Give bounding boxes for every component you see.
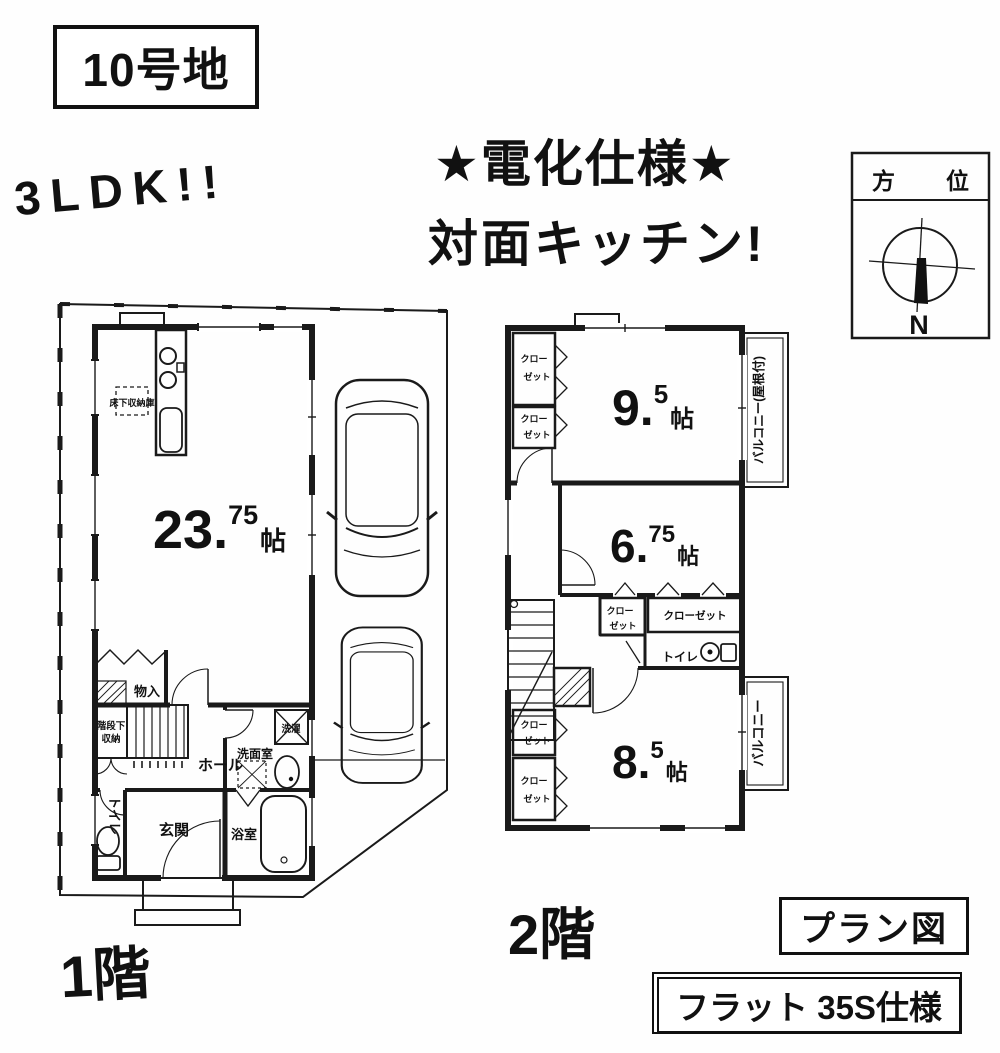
closet: クロー ゼット bbox=[513, 758, 567, 820]
room85-size-label: 8.5帖 bbox=[612, 736, 688, 788]
closet: クロー ゼット bbox=[513, 407, 567, 448]
car-icon-1 bbox=[327, 380, 437, 596]
interior-walls-2f bbox=[508, 483, 742, 668]
closet-label: ゼット bbox=[523, 371, 550, 382]
stairs-2f bbox=[508, 600, 554, 740]
folding-door-icon bbox=[613, 583, 726, 599]
lot-number-box: 10号地 bbox=[53, 25, 259, 109]
closet-label: クロー bbox=[520, 776, 547, 786]
porch-step bbox=[135, 910, 240, 925]
under-stair-storage-label1: 階段下 bbox=[97, 720, 126, 732]
floor2-title: 2階 bbox=[508, 890, 595, 971]
floorplan-flyer: 10号地 3LDK!! ★電化仕様★ 対面キッチン! 方位 N bbox=[0, 0, 1000, 1053]
closet-label: ゼット bbox=[523, 735, 550, 746]
closet-label: クロー bbox=[520, 414, 547, 424]
toilet-label-2f: トイレ bbox=[662, 650, 698, 664]
compass-north-label: N bbox=[909, 310, 929, 340]
door-leaf bbox=[626, 641, 640, 663]
lot-number-label: 10号地 bbox=[82, 34, 229, 100]
folding-door-icon bbox=[555, 718, 567, 742]
door-arc bbox=[172, 669, 208, 705]
kitchen-sink-icon bbox=[160, 408, 182, 452]
spec-box: フラット 35S仕様 bbox=[652, 972, 962, 1034]
laundry-label: 洗濯 bbox=[281, 723, 301, 735]
toilet-room-1f: トイレ bbox=[96, 790, 125, 870]
toilet-icon bbox=[701, 643, 736, 661]
closet: クロー ゼット bbox=[513, 333, 567, 405]
washroom: 洗濯 洗面室 bbox=[225, 710, 308, 788]
door-arc bbox=[560, 550, 595, 585]
folding-door-icon bbox=[555, 376, 567, 400]
under-stair-storage-label2: 収納 bbox=[101, 733, 120, 745]
balcony-roofed-label: バルコニー(屋根付) bbox=[751, 356, 766, 464]
closet-label: クロー bbox=[520, 720, 547, 730]
under-stair-storage: 階段下 収納 bbox=[95, 705, 127, 774]
plan-figure-box: プラン図 bbox=[779, 897, 969, 955]
balcony-label: バルコニー bbox=[751, 699, 766, 766]
folding-door-icon bbox=[555, 794, 567, 818]
spec-label: フラット 35S仕様 bbox=[657, 977, 961, 1033]
closet-label: クロー bbox=[606, 606, 633, 616]
closet: クロー ゼット bbox=[513, 710, 567, 755]
closet-label: ゼット bbox=[523, 793, 550, 804]
stove-burner-icon bbox=[160, 372, 176, 388]
kitchen-counter bbox=[156, 330, 186, 455]
ldk-size-label: 23.75帖 bbox=[153, 500, 286, 560]
stove-knob-icon bbox=[177, 363, 184, 372]
washroom-label: 洗面室 bbox=[237, 746, 273, 761]
closet-label: クロー bbox=[520, 354, 547, 364]
plan-figure-label: プラン図 bbox=[800, 901, 948, 952]
stairwell-hatch bbox=[554, 668, 590, 706]
folding-door-icon bbox=[555, 413, 567, 437]
entrance-label: 玄関 bbox=[159, 821, 189, 839]
room95-size-label: 9.5帖 bbox=[612, 379, 694, 436]
compass-rose-icon bbox=[869, 218, 975, 312]
stairs-1f bbox=[127, 705, 188, 768]
folding-door-icon bbox=[96, 650, 166, 664]
monoire-label: 物入 bbox=[134, 684, 160, 699]
hatch-lines bbox=[96, 681, 126, 704]
washbasin-icon bbox=[275, 756, 299, 788]
underfloor-storage-label: 床下収納庫 bbox=[109, 397, 154, 408]
bathroom: 浴室 bbox=[231, 790, 306, 872]
floor1-plan: 床下収納庫 23.75帖 bbox=[48, 290, 488, 950]
door-arc bbox=[593, 668, 638, 713]
door-arc bbox=[517, 448, 552, 483]
bathroom-label: 浴室 bbox=[231, 827, 257, 842]
floor1-title: 1階 bbox=[58, 926, 153, 1015]
toilet-room-2f: トイレ bbox=[626, 641, 736, 664]
headline-counter-kitchen: 対面キッチン! bbox=[428, 204, 766, 276]
closet-label: クローゼット bbox=[664, 609, 727, 622]
balcony-roofed: バルコニー(屋根付) bbox=[742, 333, 788, 487]
folding-door-icon bbox=[236, 790, 260, 806]
compass-title: 方位 bbox=[872, 168, 969, 194]
door-arc bbox=[225, 710, 253, 738]
balcony: バルコニー bbox=[742, 677, 788, 790]
headline-all-electric: ★電化仕様★ bbox=[434, 124, 736, 196]
folding-door-icon bbox=[555, 345, 567, 369]
bathtub-icon bbox=[261, 796, 306, 872]
closet-label: ゼット bbox=[523, 429, 550, 440]
stove-burner-icon bbox=[160, 348, 176, 364]
folding-door-icon bbox=[555, 766, 567, 790]
room675-size-label: 6.75帖 bbox=[610, 520, 699, 572]
monoire-closet: 物入 bbox=[96, 650, 166, 704]
closet: クローゼット bbox=[648, 598, 742, 632]
closet-label: ゼット bbox=[609, 620, 636, 631]
floor2-plan: バルコニー(屋根付) バルコニー bbox=[490, 300, 800, 900]
headline-3ldk: 3LDK!! bbox=[12, 153, 230, 226]
door-arc bbox=[111, 758, 127, 774]
closet: クロー ゼット bbox=[600, 598, 645, 635]
compass-box: 方位 N bbox=[848, 148, 993, 343]
